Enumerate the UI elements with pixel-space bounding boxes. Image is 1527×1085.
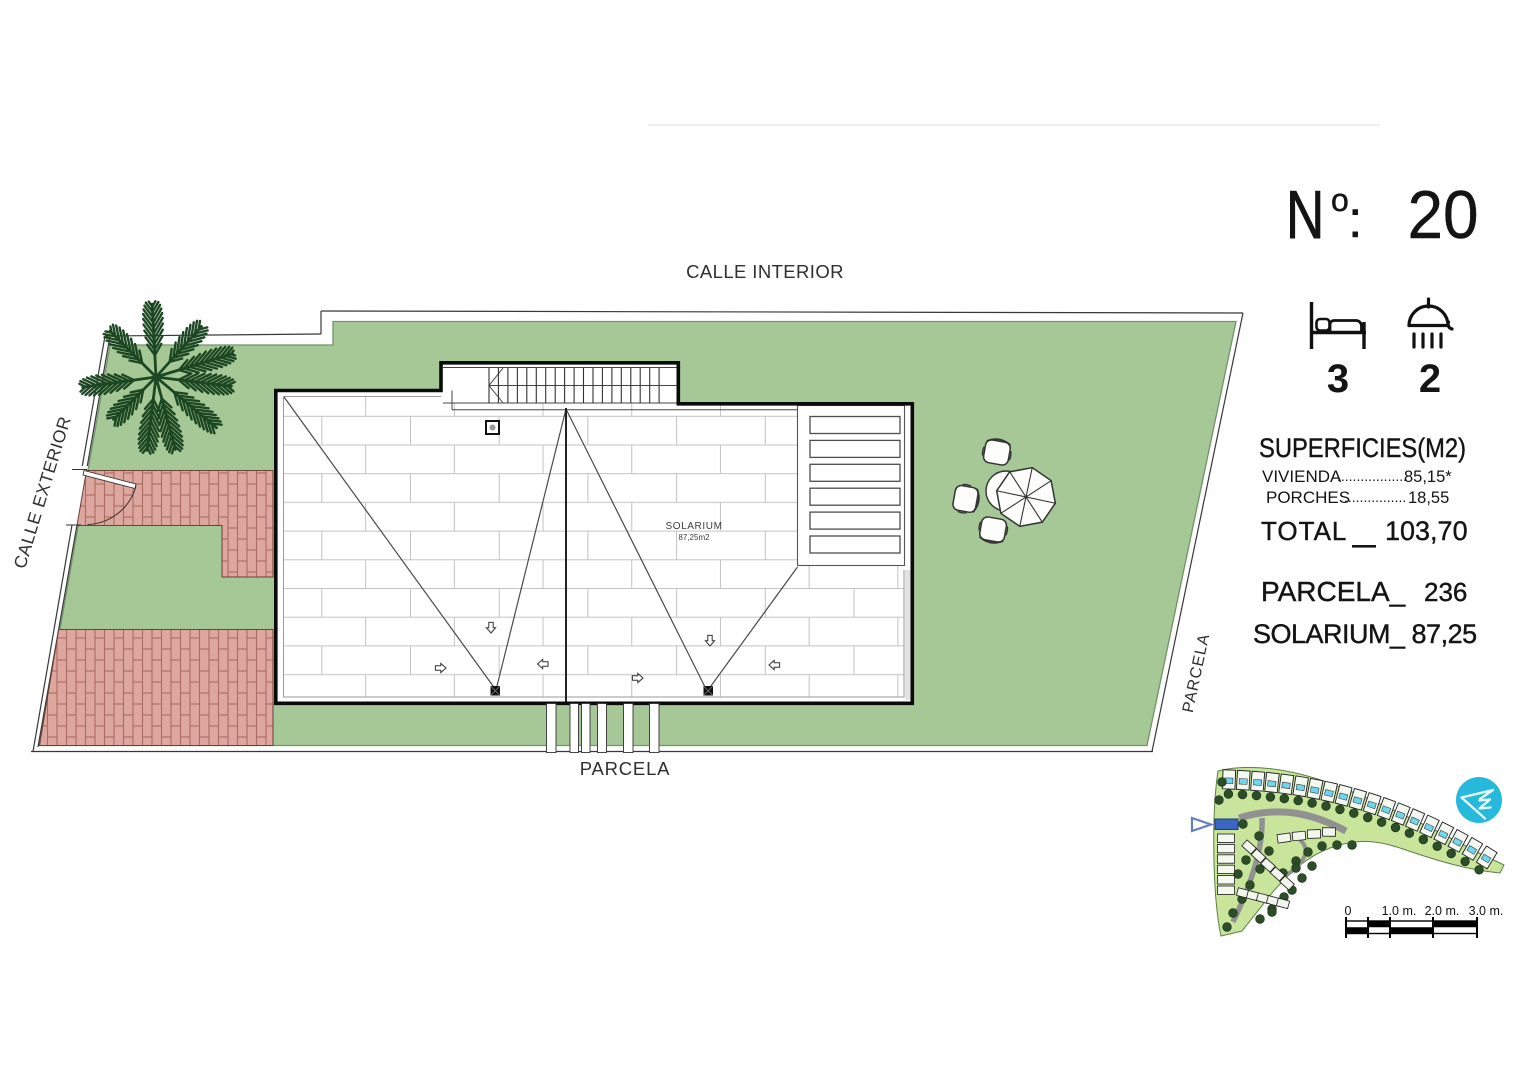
svg-text:CALLE INTERIOR: CALLE INTERIOR <box>686 261 844 282</box>
svg-text:N: N <box>1286 177 1324 253</box>
svg-text:VIVIENDA: VIVIENDA <box>1262 467 1342 486</box>
svg-text:0: 0 <box>1345 904 1352 918</box>
svg-text:87,25m2: 87,25m2 <box>678 533 710 542</box>
svg-text::: : <box>1348 191 1362 249</box>
svg-text:TOTAL: TOTAL <box>1261 516 1347 546</box>
svg-text:PARCELA_: PARCELA_ <box>1261 576 1406 607</box>
svg-text:2: 2 <box>1419 357 1441 401</box>
svg-text:SUPERFICIES(M2): SUPERFICIES(M2) <box>1259 433 1466 463</box>
svg-text:2.0 m.: 2.0 m. <box>1425 904 1460 918</box>
svg-text:PARCELA: PARCELA <box>580 758 671 779</box>
svg-text:SOLARIUM_ 87,25: SOLARIUM_ 87,25 <box>1253 619 1477 649</box>
svg-text:................: ................ <box>1344 489 1406 505</box>
svg-text:18,55: 18,55 <box>1408 489 1449 507</box>
svg-text:PORCHES: PORCHES <box>1266 488 1350 507</box>
svg-text:1.0 m.: 1.0 m. <box>1382 904 1417 918</box>
svg-text:236: 236 <box>1424 577 1467 607</box>
svg-text:3: 3 <box>1327 357 1349 401</box>
svg-text:SOLARIUM: SOLARIUM <box>665 521 722 532</box>
svg-text:o: o <box>1331 182 1349 218</box>
svg-text:3.0 m.: 3.0 m. <box>1469 904 1504 918</box>
svg-text:20: 20 <box>1407 176 1478 252</box>
svg-text:103,70: 103,70 <box>1385 516 1468 546</box>
svg-text:85,15*: 85,15* <box>1404 468 1452 486</box>
svg-text:..................: .................. <box>1337 468 1407 484</box>
